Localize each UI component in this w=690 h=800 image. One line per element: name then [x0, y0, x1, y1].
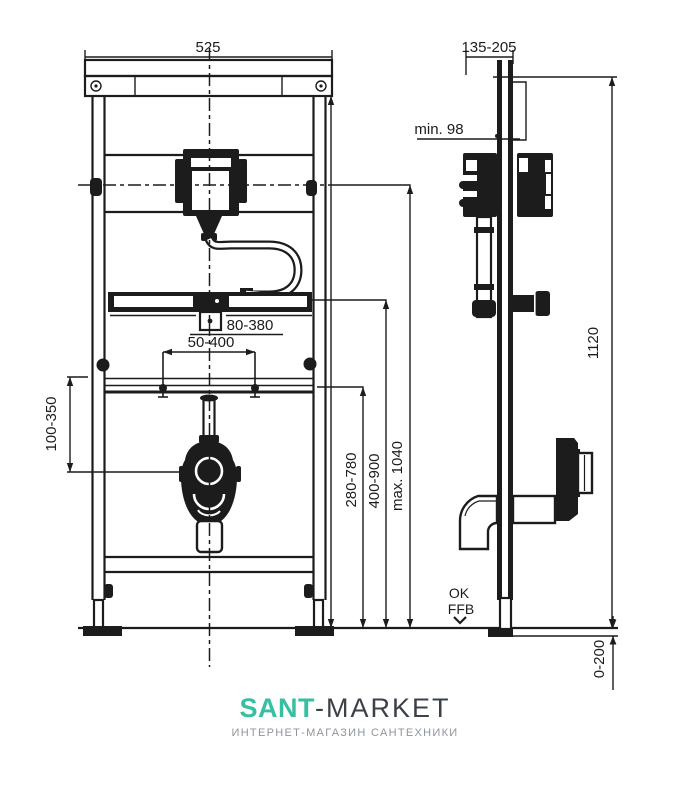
dim-total-height: 1120 — [585, 77, 615, 628]
adjustable-foot — [94, 600, 103, 628]
adjustable-foot — [500, 598, 511, 629]
foot-plate — [488, 629, 513, 637]
frame-bottom — [94, 557, 323, 628]
dim-stud-range-label: 50-400 — [188, 334, 235, 351]
side-cistern-box — [517, 153, 553, 217]
technical-drawing: 525 — [0, 0, 690, 690]
dim-arrow — [609, 77, 615, 86]
store-logo: SANT-MARKET ИНТЕРНЕТ-МАГАЗИН САНТЕХНИКИ — [0, 694, 690, 739]
dim-arrow — [360, 619, 366, 628]
foot-plate — [83, 626, 122, 636]
store-logo-primary: SANT — [240, 693, 316, 723]
supply-pipe-stub — [513, 291, 550, 316]
pipe-cap — [535, 291, 550, 316]
leg-clip — [104, 584, 113, 598]
floor-ref-top-label: OK — [449, 585, 470, 601]
lower-rail — [97, 358, 317, 393]
flush-hose — [209, 239, 298, 301]
dim-total-height-label: 1120 — [585, 327, 602, 359]
dim-min-depth-label: min. 98 — [414, 121, 463, 138]
dim-depth-range-label: 135-205 — [461, 39, 516, 56]
dim-arrow — [610, 636, 617, 645]
frame-top — [85, 60, 332, 96]
floor-reference: OK FFB — [448, 585, 474, 623]
adjustable-foot — [314, 600, 323, 628]
rail-clip — [304, 358, 317, 371]
dim-arrow — [246, 349, 255, 355]
dim-arrow — [407, 619, 413, 628]
dim-siphon-range-label: 100-350 — [43, 396, 60, 451]
dim-arrow — [328, 96, 334, 105]
flush-valve-unit — [175, 149, 247, 241]
product-drawing-page: 525 — [0, 0, 690, 800]
store-logo-wordmark: SANT-MARKET — [0, 694, 690, 724]
foot-plate — [295, 626, 334, 636]
store-logo-tagline: ИНТЕРНЕТ-МАГАЗИН САНТЕХНИКИ — [0, 727, 690, 739]
outlet-connection — [513, 438, 592, 523]
dim-plate-range-label: 80-380 — [227, 317, 274, 334]
store-logo-secondary: -MARKET — [315, 693, 451, 723]
drain-elbow — [460, 496, 497, 549]
rail-clip — [97, 359, 110, 372]
dim-arrow — [383, 619, 389, 628]
down-chevron-icon — [454, 617, 466, 623]
rail-clip — [306, 180, 317, 196]
rail-clip — [90, 178, 102, 196]
dim-arrow — [163, 349, 172, 355]
dim-height-plate-label: 400-900 — [366, 453, 383, 508]
height-dimensions: 280-780 400-900 max. 1040 — [312, 96, 413, 628]
dim-min-depth: min. 98 — [414, 121, 520, 139]
dim-arrow — [67, 463, 73, 472]
dim-height-max-label: max. 1040 — [389, 441, 406, 511]
dim-front-width-label: 525 — [195, 39, 220, 56]
front-view: 525 — [43, 39, 413, 667]
floor-ref-bottom-label: FFB — [448, 601, 474, 617]
dim-arrow — [67, 377, 73, 386]
dim-height-rail-label: 280-780 — [343, 452, 360, 507]
dim-arrow — [360, 387, 366, 396]
side-flush-valve — [459, 153, 497, 317]
leg-clip — [304, 584, 313, 598]
wall-bracket — [513, 82, 526, 140]
side-view: 135-205 min. 98 — [414, 39, 618, 690]
dim-arrow — [407, 185, 413, 194]
dim-floor-adjust-label: 0-200 — [591, 640, 608, 678]
dim-arrow — [383, 300, 389, 309]
